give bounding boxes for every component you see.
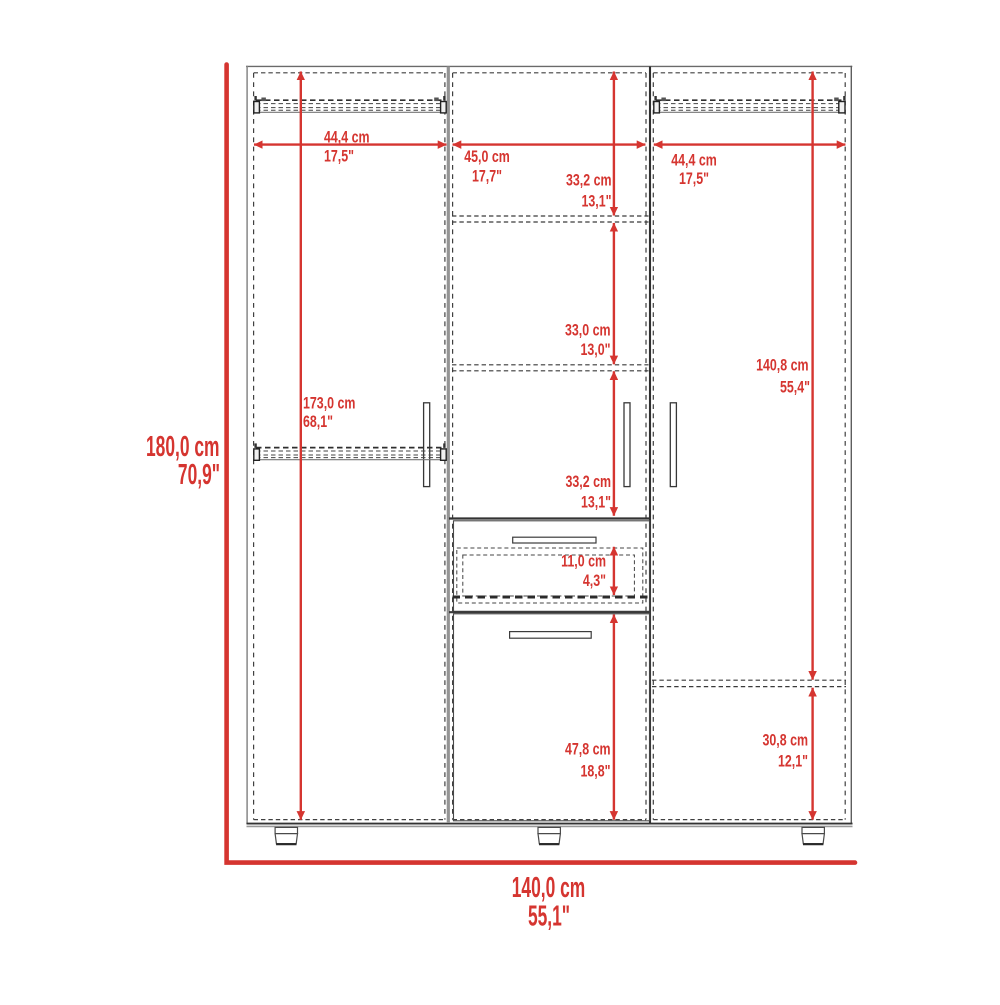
svg-text:70,9": 70,9"	[178, 459, 220, 492]
svg-text:4,3": 4,3"	[583, 572, 606, 590]
svg-text:55,4": 55,4"	[780, 379, 810, 397]
svg-text:33,2 cm: 33,2 cm	[566, 172, 612, 190]
svg-text:17,7": 17,7"	[472, 168, 502, 186]
svg-text:44,4 cm: 44,4 cm	[671, 152, 717, 170]
svg-text:33,2 cm: 33,2 cm	[565, 473, 611, 491]
svg-text:18,8": 18,8"	[580, 763, 610, 781]
svg-text:13,1": 13,1"	[581, 193, 611, 211]
svg-text:173,0 cm: 173,0 cm	[303, 395, 355, 413]
svg-text:13,0": 13,0"	[580, 341, 610, 359]
svg-text:68,1": 68,1"	[303, 413, 333, 431]
svg-text:17,5": 17,5"	[324, 148, 354, 166]
svg-text:33,0 cm: 33,0 cm	[565, 322, 611, 340]
svg-text:45,0 cm: 45,0 cm	[464, 148, 510, 166]
svg-text:30,8 cm: 30,8 cm	[762, 732, 808, 750]
svg-text:11,0 cm: 11,0 cm	[561, 553, 606, 571]
svg-text:12,1": 12,1"	[778, 753, 808, 771]
svg-text:47,8 cm: 47,8 cm	[565, 741, 611, 759]
svg-text:17,5": 17,5"	[679, 170, 709, 188]
svg-text:44,4 cm: 44,4 cm	[324, 129, 370, 147]
svg-text:140,8 cm: 140,8 cm	[756, 357, 808, 375]
svg-text:55,1": 55,1"	[528, 900, 570, 933]
svg-text:13,1": 13,1"	[581, 494, 611, 512]
